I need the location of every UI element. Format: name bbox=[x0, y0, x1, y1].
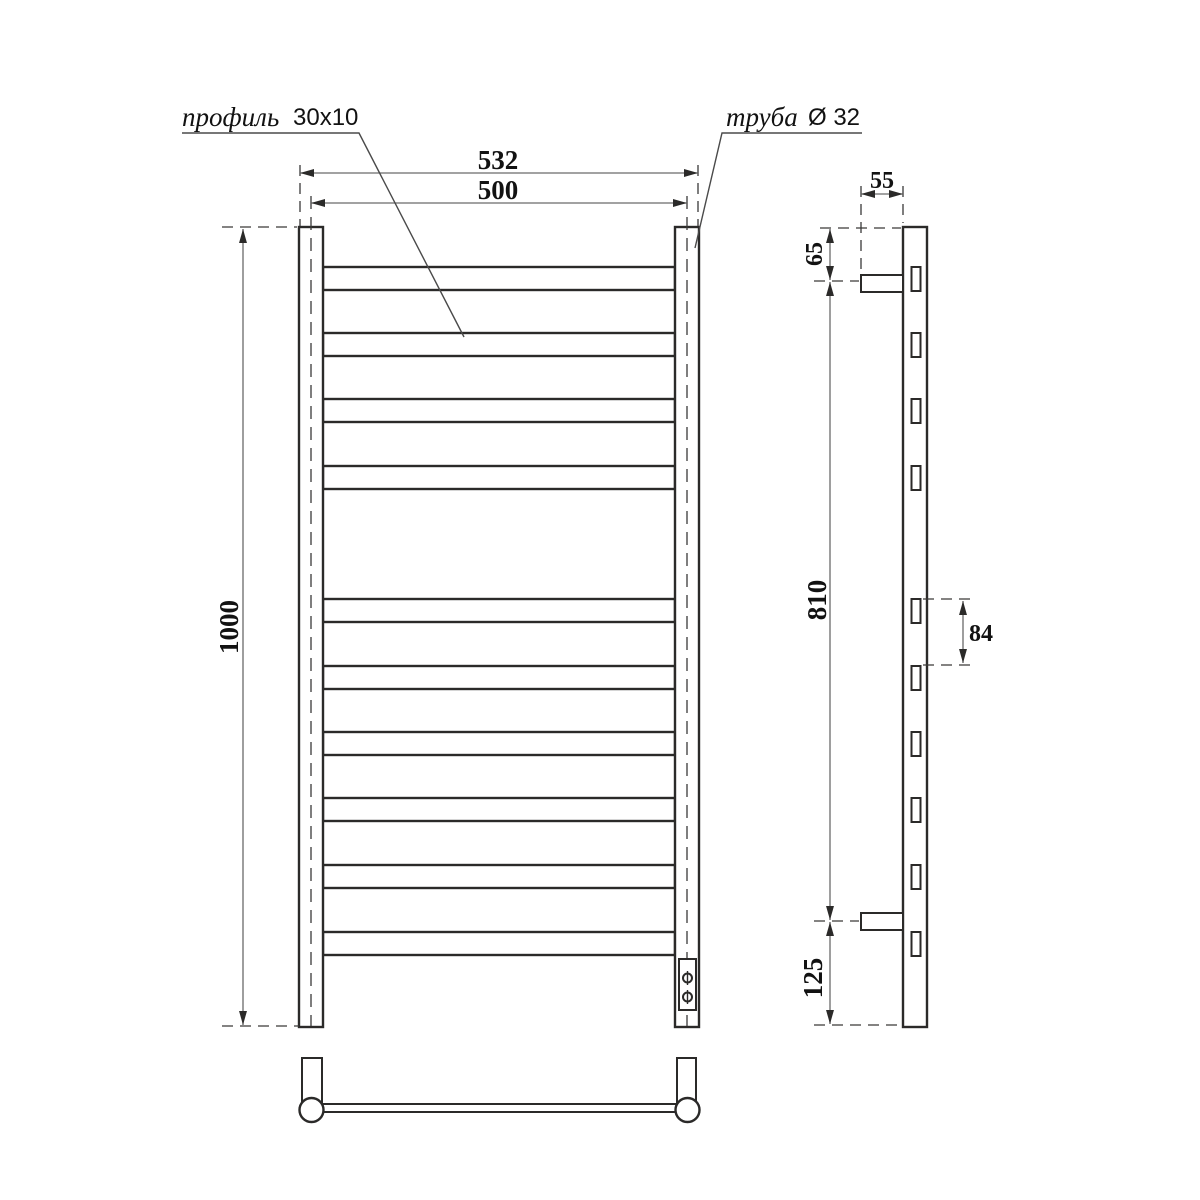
rung bbox=[323, 798, 675, 821]
rung-slot bbox=[912, 865, 921, 889]
dim-center-width: 500 bbox=[311, 175, 687, 205]
wall-bracket-bottom bbox=[861, 913, 903, 930]
extension-line bbox=[861, 186, 903, 272]
bottom-rung-tube bbox=[316, 1104, 683, 1112]
dim-top-offset: 65 bbox=[802, 228, 901, 281]
rung-slot bbox=[912, 466, 921, 490]
rung-slot bbox=[912, 333, 921, 357]
bottom-bracket-left bbox=[302, 1058, 322, 1103]
callout-profile-label: профиль bbox=[182, 102, 279, 132]
extension-line bbox=[923, 599, 972, 665]
rail-end-cap-right bbox=[676, 1098, 700, 1122]
rung bbox=[323, 732, 675, 755]
rung bbox=[323, 932, 675, 955]
rung bbox=[323, 333, 675, 356]
callout-tube: труба Ø 32 bbox=[695, 102, 862, 248]
rung bbox=[323, 599, 675, 622]
dim-top-offset-value: 65 bbox=[802, 242, 828, 266]
rung-slot bbox=[912, 399, 921, 423]
dim-bracket-length-value: 55 bbox=[870, 168, 894, 194]
dim-mount-span-value: 810 bbox=[802, 580, 832, 621]
rung-slot bbox=[912, 798, 921, 822]
dim-height-value: 1000 bbox=[214, 600, 244, 654]
leader-line bbox=[695, 133, 862, 248]
dim-mount-span: 810 bbox=[802, 282, 832, 920]
dim-overall-width-value: 532 bbox=[478, 145, 519, 175]
towel-rail-technical-drawing: 532 500 1000 bbox=[0, 0, 1200, 1200]
side-view: 55 65 810 84 125 bbox=[798, 168, 993, 1027]
dim-height: 1000 bbox=[214, 227, 299, 1026]
rung-slot bbox=[912, 732, 921, 756]
callout-tube-size: Ø 32 bbox=[808, 104, 860, 131]
rung-slot bbox=[912, 666, 921, 690]
rung-slot bbox=[912, 932, 921, 956]
wall-bracket-top bbox=[861, 275, 903, 292]
callout-tube-label: труба bbox=[726, 102, 798, 132]
rung bbox=[323, 666, 675, 689]
rung bbox=[323, 466, 675, 489]
drawing-canvas: 532 500 1000 bbox=[0, 0, 1200, 1200]
bottom-bracket-right bbox=[677, 1058, 696, 1103]
electrical-box bbox=[679, 959, 696, 1010]
bottom-view bbox=[300, 1058, 700, 1122]
dim-bracket-length: 55 bbox=[861, 168, 903, 272]
callout-profile-size: 30x10 bbox=[293, 104, 358, 131]
dim-bottom-offset-value: 125 bbox=[798, 958, 828, 999]
rung bbox=[323, 267, 675, 290]
rung-slot bbox=[912, 599, 921, 623]
rung bbox=[323, 865, 675, 888]
rail-end-cap-left bbox=[300, 1098, 324, 1122]
dim-center-width-value: 500 bbox=[478, 175, 519, 205]
rung-slot bbox=[912, 267, 921, 291]
dim-rung-pitch-value: 84 bbox=[969, 621, 993, 647]
rung bbox=[323, 399, 675, 422]
dim-rung-pitch: 84 bbox=[923, 599, 993, 665]
rung-group bbox=[323, 267, 675, 955]
front-view: 532 500 1000 bbox=[214, 145, 699, 1027]
dim-bottom-offset: 125 bbox=[798, 921, 901, 1025]
